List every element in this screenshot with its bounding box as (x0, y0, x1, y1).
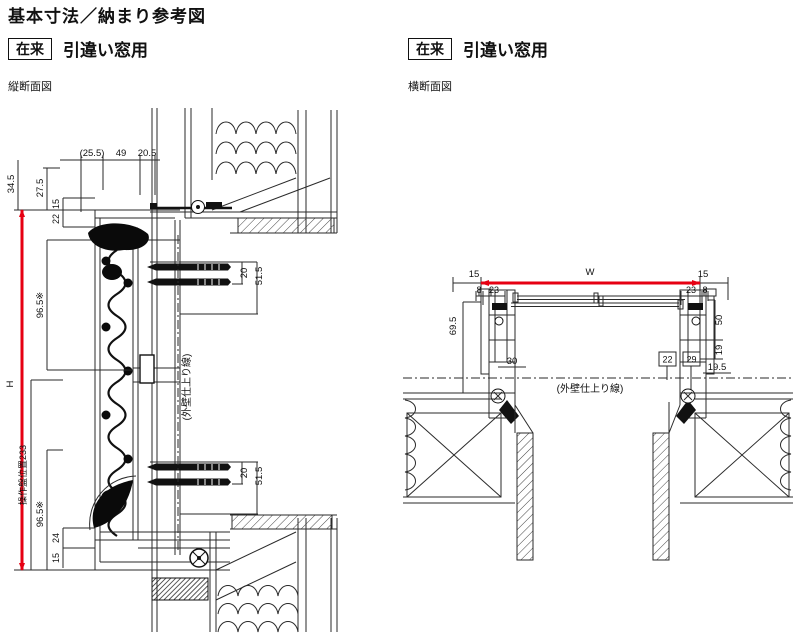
dim-label: 15 (698, 269, 709, 280)
page-title: 基本寸法／納まり参考図 (8, 2, 206, 27)
dim-label: H (5, 380, 16, 387)
height-red-line (19, 209, 25, 571)
width-red-line (480, 280, 701, 286)
dim-label: 19.5 (708, 362, 727, 373)
dim-label: 23 (489, 285, 499, 295)
vertical-section-drawing: (25.5) 49 20.5 34.5 27.5 15 22 96.5※ H 操… (0, 100, 345, 634)
sill-seal-blob (93, 480, 133, 528)
dim-label: 34.5 (6, 175, 17, 194)
dim-label: 15 (51, 199, 61, 209)
dim-label: 27.5 (35, 179, 46, 198)
dim-label: 23 (686, 285, 696, 295)
finish-line-label: (外壁仕上り線) (180, 354, 193, 421)
head-seal-blob (88, 223, 149, 250)
wall-structures (403, 393, 793, 560)
dim-label: 51.5 (254, 267, 265, 286)
horizontal-view-label: 横断面図 (408, 78, 452, 94)
dim-label: 51.5 (254, 467, 265, 486)
horizontal-section-header: 在来 引違い窓用 (408, 36, 548, 61)
dim-label: 20 (239, 468, 250, 479)
wall-structure-top (150, 108, 337, 233)
dim-label: 29 (686, 355, 696, 365)
dim-label: 19 (714, 345, 725, 356)
dim-label: 15 (51, 553, 61, 563)
dim-label: 24 (51, 533, 61, 543)
dim-label: 96.5※ (35, 501, 46, 527)
vertical-heading: 引違い窓用 (63, 36, 148, 61)
operator-handle (140, 355, 154, 383)
vertical-view-label: 縦断面図 (8, 78, 52, 94)
dim-label: W (586, 267, 595, 278)
dim-label: 50 (714, 315, 725, 326)
dim-label: 15 (469, 269, 480, 280)
vertical-badge: 在来 (8, 38, 52, 60)
horizontal-section-drawing: 15 W 15 8 23 23 8 69.5 50 19 22 29 19.5 … (395, 100, 800, 634)
dim-label: 30 (507, 356, 518, 367)
dim-label: 22 (662, 355, 672, 365)
dim-label: 49 (116, 148, 127, 159)
horizontal-badge: 在来 (408, 38, 452, 60)
page: 基本寸法／納まり参考図 在来 引違い窓用 縦断面図 在来 引違い窓用 横断面図 (0, 0, 800, 634)
wall-structure-bottom (100, 515, 337, 632)
dim-label: 22 (51, 214, 61, 224)
horizontal-dim-labels: 15 W 15 8 23 23 8 69.5 50 19 22 29 19.5 … (448, 267, 726, 395)
dim-label: 8 (476, 285, 481, 295)
dim-label: 操作盤位置233 (17, 445, 28, 505)
finish-line-label: (外壁仕上り線) (557, 382, 624, 395)
vertical-section-header: 在来 引違い窓用 (8, 36, 148, 61)
dim-label: 69.5 (448, 317, 459, 336)
dim-label: 20 (239, 268, 250, 279)
dim-label: 96.5※ (35, 292, 46, 318)
dim-label: (25.5) (80, 148, 105, 159)
dim-label: 20.5 (138, 148, 157, 159)
dim-label: 8 (702, 285, 707, 295)
horizontal-heading: 引違い窓用 (463, 36, 548, 61)
